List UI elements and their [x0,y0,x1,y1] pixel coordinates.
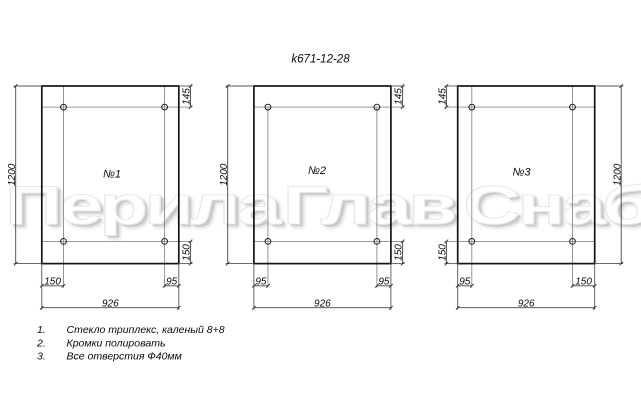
svg-text:145: 145 [394,88,405,105]
svg-text:95: 95 [459,277,471,288]
svg-text:Кромки полировать: Кромки полировать [67,338,166,350]
svg-text:1200: 1200 [7,163,18,186]
svg-text:926: 926 [314,299,331,310]
svg-text:1200: 1200 [219,163,230,186]
svg-text:1.: 1. [37,324,46,336]
svg-text:3.: 3. [37,351,46,363]
svg-text:1200: 1200 [612,163,623,186]
svg-text:2.: 2. [36,338,46,350]
svg-text:Все отверстия Ф40мм: Все отверстия Ф40мм [67,351,182,363]
svg-text:145: 145 [182,88,193,105]
svg-text:k671-12-28: k671-12-28 [291,54,350,66]
svg-text:95: 95 [378,277,390,288]
svg-text:150: 150 [394,244,405,261]
svg-text:Стекло триплекс, каленый 8+8: Стекло триплекс, каленый 8+8 [67,324,225,336]
svg-text:926: 926 [518,299,535,310]
svg-text:№1: №1 [103,168,121,180]
svg-text:95: 95 [166,277,178,288]
svg-text:926: 926 [102,299,119,310]
svg-text:150: 150 [575,277,592,288]
svg-text:№2: №2 [308,165,326,177]
svg-text:№3: №3 [512,166,531,178]
svg-text:150: 150 [438,244,449,261]
svg-text:145: 145 [438,88,449,105]
svg-text:150: 150 [44,277,61,288]
svg-text:150: 150 [182,244,193,261]
svg-text:95: 95 [255,277,267,288]
